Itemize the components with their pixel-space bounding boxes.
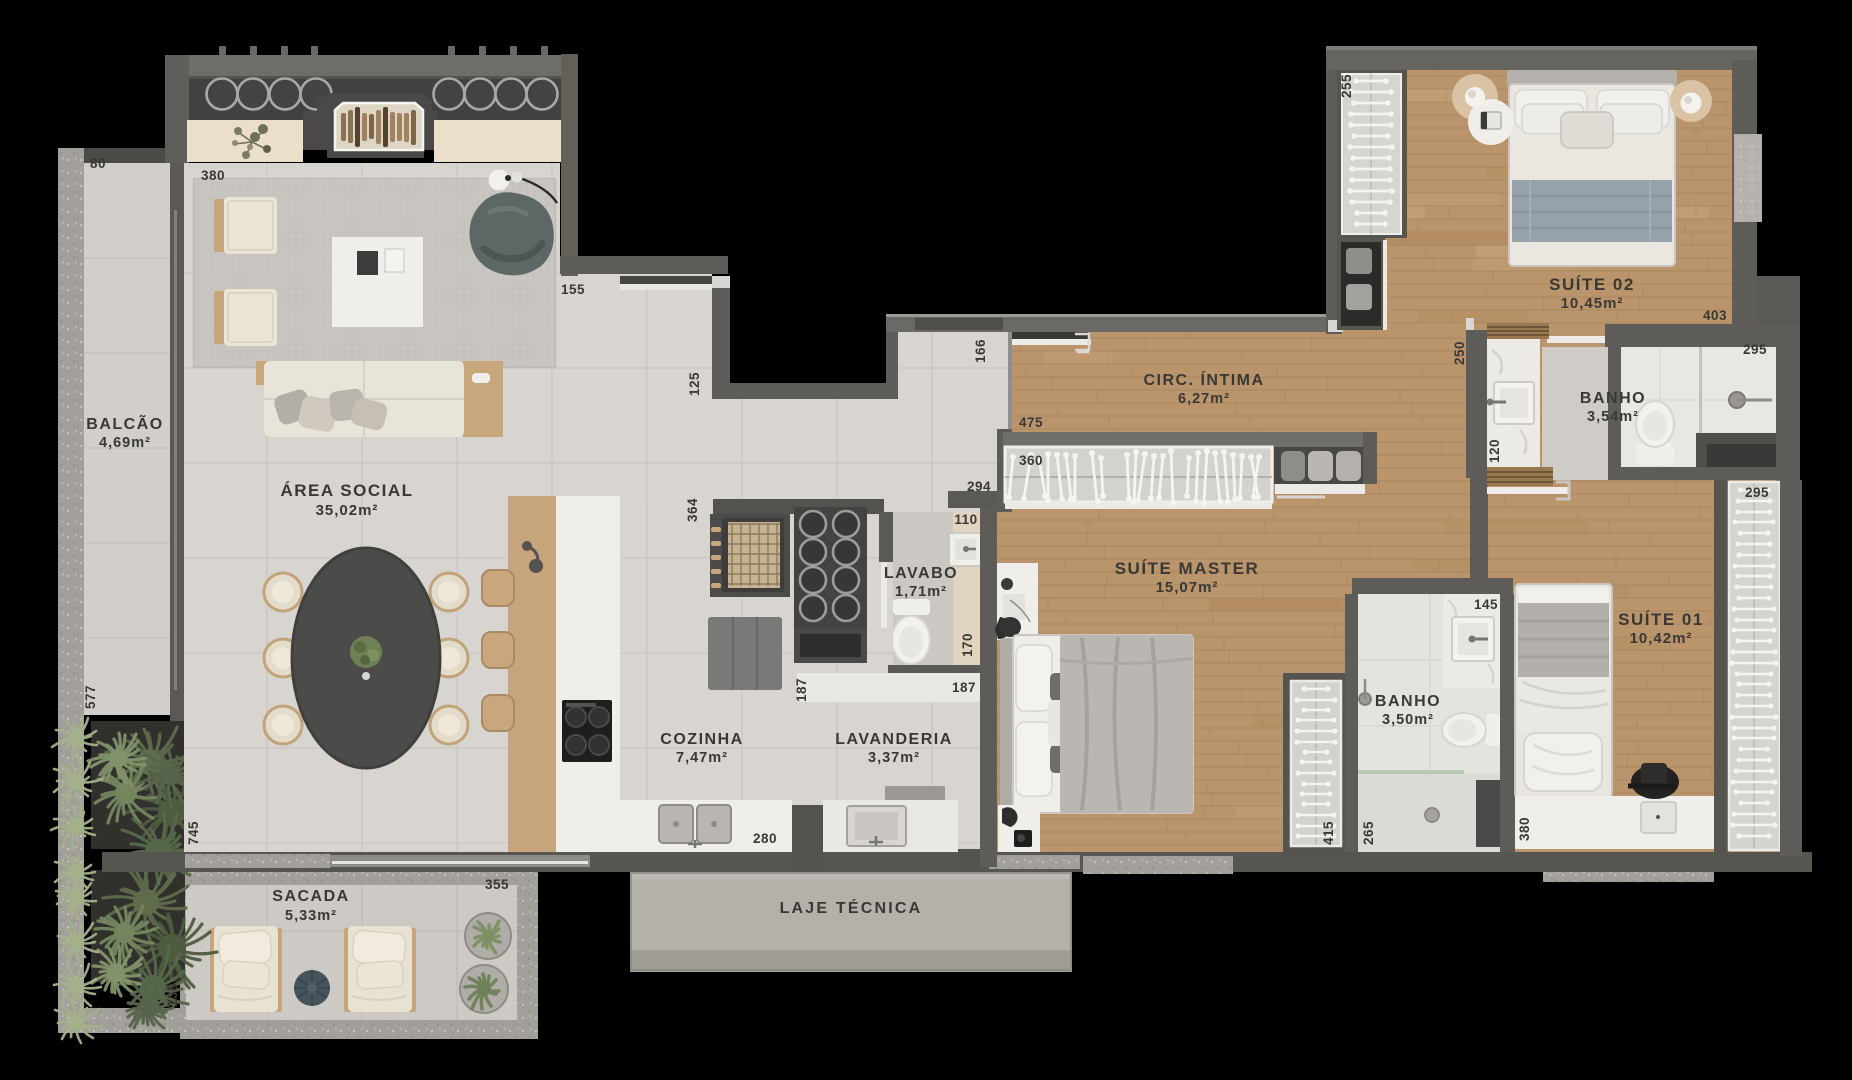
svg-text:SUÍTE 02: SUÍTE 02 — [1549, 275, 1635, 294]
svg-text:187: 187 — [794, 678, 809, 702]
svg-text:3,37m²: 3,37m² — [868, 750, 920, 766]
svg-text:280: 280 — [753, 831, 777, 846]
svg-text:166: 166 — [973, 339, 988, 363]
svg-text:745: 745 — [186, 821, 201, 845]
svg-text:LAVANDERIA: LAVANDERIA — [835, 731, 953, 748]
svg-text:3,50m²: 3,50m² — [1382, 712, 1434, 728]
svg-text:SACADA: SACADA — [272, 888, 349, 905]
svg-text:ÁREA SOCIAL: ÁREA SOCIAL — [281, 481, 414, 500]
svg-text:80: 80 — [90, 156, 106, 171]
svg-text:255: 255 — [1339, 74, 1354, 98]
svg-text:5,33m²: 5,33m² — [285, 908, 337, 924]
svg-text:265: 265 — [1361, 821, 1376, 845]
svg-text:364: 364 — [685, 498, 700, 522]
svg-text:35,02m²: 35,02m² — [316, 502, 379, 519]
svg-text:1,71m²: 1,71m² — [895, 584, 947, 600]
svg-text:415: 415 — [1321, 821, 1336, 845]
svg-text:577: 577 — [83, 685, 98, 709]
svg-text:6,27m²: 6,27m² — [1178, 391, 1230, 407]
svg-text:7,47m²: 7,47m² — [676, 750, 728, 766]
svg-text:294: 294 — [967, 479, 991, 494]
svg-text:250: 250 — [1452, 341, 1467, 365]
svg-text:403: 403 — [1703, 308, 1727, 323]
svg-text:COZINHA: COZINHA — [660, 731, 743, 748]
svg-text:BANHO: BANHO — [1580, 390, 1646, 407]
svg-text:187: 187 — [952, 680, 976, 695]
svg-text:LAVABO: LAVABO — [884, 565, 958, 582]
svg-text:LAJE TÉCNICA: LAJE TÉCNICA — [780, 898, 923, 917]
svg-text:125: 125 — [687, 372, 702, 396]
svg-text:10,42m²: 10,42m² — [1630, 630, 1693, 647]
svg-text:BALCÃO: BALCÃO — [86, 413, 163, 433]
svg-text:155: 155 — [561, 282, 585, 297]
svg-text:110: 110 — [954, 512, 977, 527]
svg-text:BANHO: BANHO — [1375, 693, 1441, 710]
svg-text:380: 380 — [1517, 817, 1532, 841]
svg-text:295: 295 — [1745, 485, 1769, 500]
svg-text:4,69m²: 4,69m² — [99, 435, 151, 451]
svg-text:10,45m²: 10,45m² — [1561, 295, 1624, 312]
svg-text:380: 380 — [201, 168, 225, 183]
svg-text:355: 355 — [485, 877, 509, 892]
svg-text:3,54m²: 3,54m² — [1587, 409, 1639, 425]
svg-text:SUÍTE MASTER: SUÍTE MASTER — [1115, 559, 1260, 578]
svg-text:295: 295 — [1743, 342, 1767, 357]
svg-text:SUÍTE 01: SUÍTE 01 — [1618, 610, 1704, 629]
svg-text:145: 145 — [1474, 597, 1498, 612]
svg-text:120: 120 — [1487, 439, 1502, 463]
svg-text:475: 475 — [1019, 415, 1043, 430]
svg-text:138: 138 — [165, 983, 180, 1007]
svg-text:360: 360 — [1019, 453, 1043, 468]
svg-text:CIRC. ÍNTIMA: CIRC. ÍNTIMA — [1143, 370, 1264, 389]
svg-text:15,07m²: 15,07m² — [1156, 579, 1219, 596]
svg-text:170: 170 — [960, 633, 975, 657]
